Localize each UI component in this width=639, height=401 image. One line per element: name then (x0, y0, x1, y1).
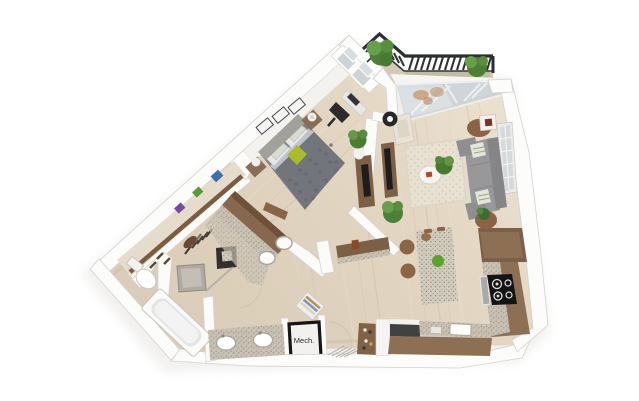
svg-text:Mech.: Mech. (294, 336, 314, 345)
